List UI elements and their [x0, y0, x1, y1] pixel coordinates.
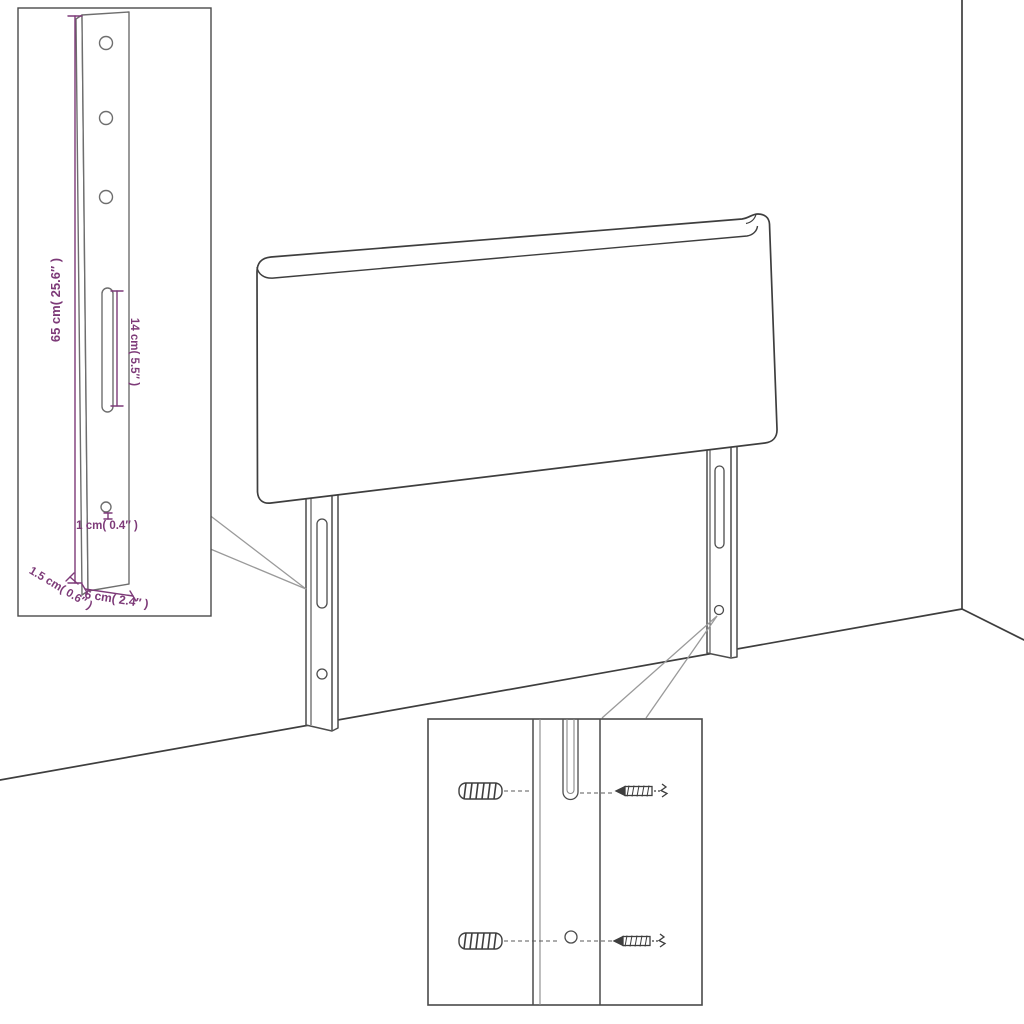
hole-dimension-label: 1 cm( 0.4″ ) — [76, 520, 138, 532]
wall-anchor-2 — [459, 933, 502, 949]
leg-bracket-drawing — [76, 12, 129, 595]
diagram-canvas: 65 cm( 25.6″ ) 14 cm( 5.5″ ) 1 cm( 0.4″ … — [0, 0, 1024, 1024]
inset1-leader-lower — [208, 548, 306, 589]
diagram-stage: 65 cm( 25.6″ ) 14 cm( 5.5″ ) 1 cm( 0.4″ … — [0, 0, 1024, 1024]
leg-bracket-slot — [102, 288, 113, 412]
headboard-panel — [257, 214, 777, 503]
inset1-leader-upper — [208, 514, 306, 589]
leg-bracket-hole-2 — [100, 112, 113, 125]
leg-bracket-hole-1 — [100, 37, 113, 50]
hardware-inset-box — [428, 719, 702, 1005]
right-leg-slot — [715, 466, 724, 548]
leg-bracket-small-hole — [101, 502, 111, 512]
leg-bracket-hole-3 — [100, 191, 113, 204]
slot-dimension-label: 14 cm( 5.5″ ) — [128, 318, 140, 386]
leg-dimension-inset: 65 cm( 25.6″ ) 14 cm( 5.5″ ) 1 cm( 0.4″ … — [18, 8, 211, 616]
right-leg-hole — [715, 606, 724, 615]
left-leg-slot — [317, 519, 327, 608]
hardware-inset — [428, 719, 702, 1005]
height-dimension-label: 65 cm( 25.6″ ) — [48, 258, 63, 342]
wall-anchor-1 — [459, 783, 502, 799]
headboard-outline — [257, 214, 777, 503]
inset2-leader-right — [646, 616, 717, 718]
floor-edge-right-line — [962, 609, 1024, 640]
leader-lines — [208, 514, 717, 718]
left-leg — [306, 490, 338, 731]
inset2-leader-left — [602, 616, 717, 718]
left-leg-hole — [317, 669, 327, 679]
right-leg — [707, 440, 737, 658]
